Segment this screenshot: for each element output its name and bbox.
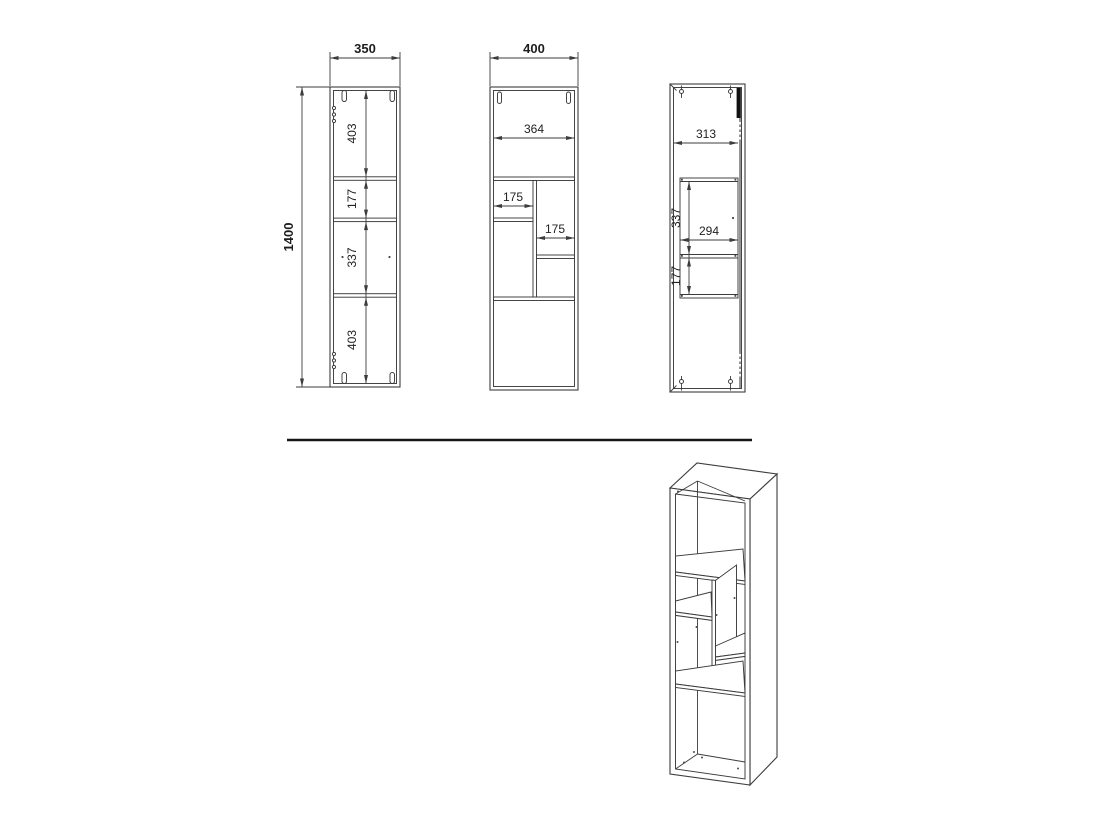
dim-side-left-width: 350 [330,41,400,86]
dim-label: 1400 [281,223,296,252]
pin-hole [732,217,734,219]
mounting-slot [390,373,395,384]
shelf-edge [494,177,575,181]
dim-side-left-height: 1400 [281,87,332,387]
dim-label: 364 [524,122,544,136]
dim-label: 400 [523,41,545,56]
keyhole-slot [498,92,502,104]
dim-label: 337 [669,208,683,228]
keyhole-slot [567,92,571,104]
shelf-edge [334,177,397,181]
technical-drawing-canvas: 350 1400 403 177 337 403 [0,0,1109,831]
side-view-left: 350 1400 403 177 337 403 [281,41,400,387]
dim-label: 350 [354,41,376,56]
mounting-slot [342,373,347,384]
dim-label: 403 [345,123,359,143]
shelf-edge [494,218,534,222]
pin-hole [388,256,390,258]
dim-label: 313 [696,127,716,141]
vertical-divider [533,181,537,298]
shelf-edge [537,255,575,259]
dim-label: 177 [345,189,359,209]
dim-label: 337 [345,247,359,267]
shelf-edge [334,294,397,298]
dim-label: 175 [545,222,565,236]
mounting-slot [342,91,347,102]
front-view: 400 364 175 175 [490,41,578,390]
furniture-dimension-drawing: 350 1400 403 177 337 403 [0,0,1109,831]
dim-label: 175 [503,190,523,204]
side-left-frame [330,87,400,387]
dim-front-width: 400 [490,41,578,86]
shelf-edge [494,297,575,301]
pin-hole [341,256,343,258]
mounting-slot [390,91,395,102]
wall-mount-rail [737,88,741,118]
dim-label: 177 [669,266,683,286]
dim-label: 403 [345,330,359,350]
perspective-view [670,463,777,785]
dim-label: 294 [699,224,719,238]
right-face [750,474,777,785]
side-view-right: 313 294 337 177 [669,84,745,392]
shelf-edge [334,218,397,222]
